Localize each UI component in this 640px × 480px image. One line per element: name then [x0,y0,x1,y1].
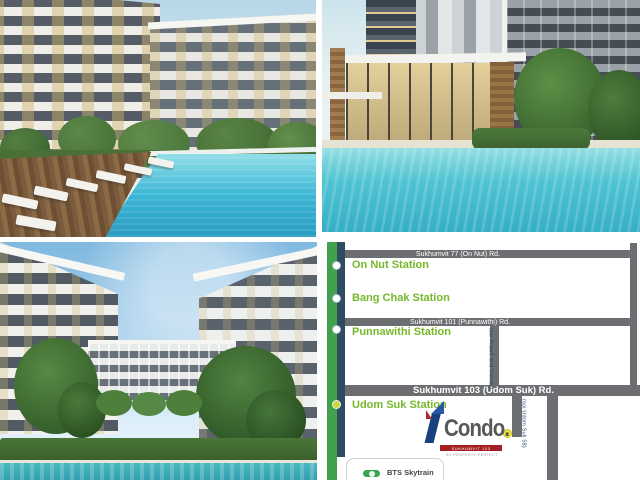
station-marker-punnawithi [332,325,341,334]
icondo-i-glyph-red-accent [426,410,432,419]
white-slab [322,92,382,99]
station-label-punnawithi: Punnawithi Station [352,326,451,338]
tree [132,392,166,416]
station-label-on-nut: On Nut Station [352,259,429,271]
hedge [0,438,317,462]
bts-line-shadow-stripe [337,242,345,457]
tree [166,390,202,416]
photo-clubhouse-pool [322,0,640,232]
icondo-logo: Condo. SUKHUMVIT 103 BY PROPERTY PERFECT [426,401,526,461]
road-sukhumvit-101: Sukhumvit 101 (Punnawithi) Rd. [345,318,637,326]
photo-courtyard-pool [0,242,317,480]
bts-line-icon [363,470,380,477]
icondo-tagline-text: BY PROPERTY PERFECT [436,453,508,457]
bts-station-icon [369,471,375,477]
road-sukhumvit-77: Sukhumvit 77 (On Nut) Rd. [345,250,637,258]
bts-skytrain-line [327,242,337,480]
icondo-brand-text: Condo. [444,417,509,441]
photo-pool-deck-buildings [0,0,316,237]
icondo-collage: Sukhumvit 77 (On Nut) Rd. Sukhumvit 101 … [0,0,640,480]
pool-water [322,148,640,232]
road-south [547,396,558,480]
icondo-banner-text: SUKHUMVIT 103 [440,445,502,451]
station-marker-on-nut [332,261,341,270]
station-marker-bang-chak [332,294,341,303]
station-label-bang-chak: Bang Chak Station [352,292,450,304]
location-map: Sukhumvit 77 (On Nut) Rd. Sukhumvit 101 … [322,242,640,480]
station-marker-udom-suk [332,400,341,409]
pool-water [0,463,317,480]
glass-corner [366,0,416,58]
soi-prawit-label: (soi Prawit and friends) [487,328,493,384]
tree [96,390,132,416]
icondo-i-glyph-flag [431,401,444,414]
road-connector-east [630,243,637,396]
map-legend: BTS Skytrain [346,458,444,480]
planter [472,128,590,150]
legend-bts-label: BTS Skytrain [387,468,434,477]
